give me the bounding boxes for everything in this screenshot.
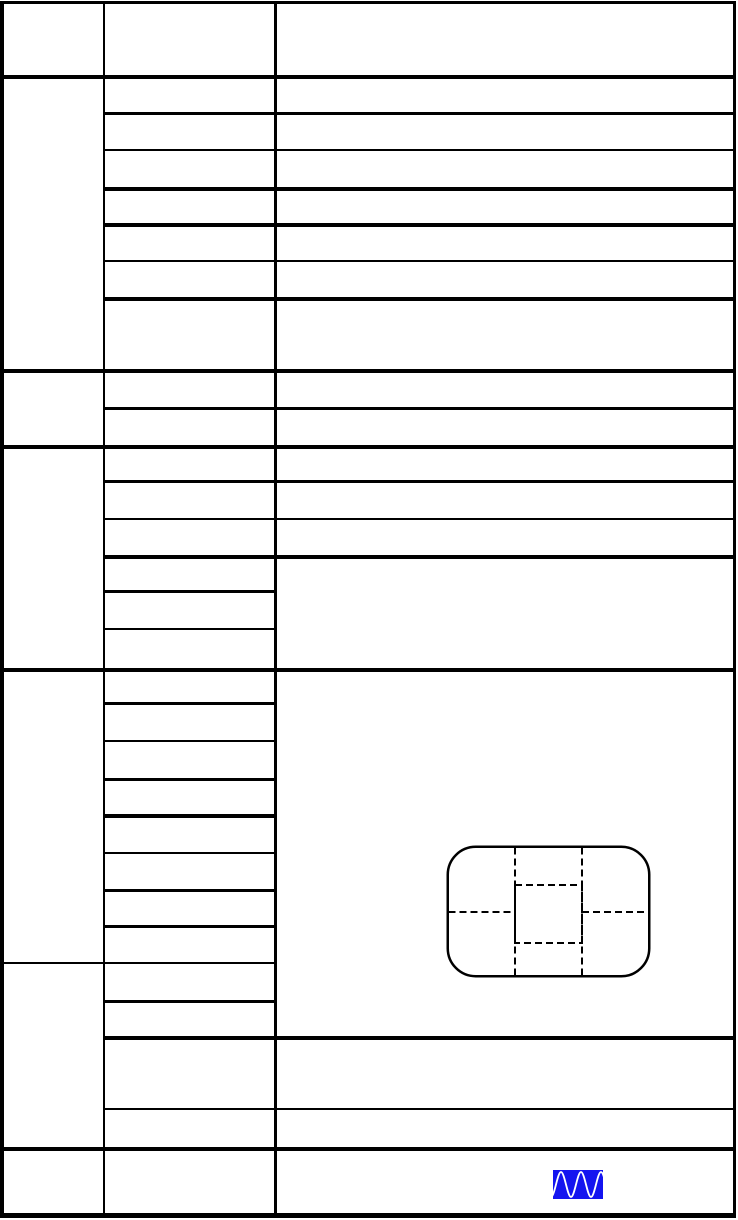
document-page <box>0 0 738 1220</box>
table-h-line <box>0 962 277 964</box>
table-h-line <box>0 1147 736 1151</box>
table-h-line <box>103 149 736 151</box>
table-h-line <box>103 740 277 742</box>
table-h-line <box>103 187 736 191</box>
table-h-line <box>103 112 736 115</box>
table-h-line <box>103 814 277 818</box>
table-h-line <box>103 590 277 593</box>
table-h-line <box>103 297 736 301</box>
table-v-line <box>0 1 4 1218</box>
table-h-line <box>0 1213 736 1218</box>
center-metering-box <box>515 885 582 943</box>
table-h-line <box>103 480 736 483</box>
sine-wave-icon <box>553 1170 603 1199</box>
table-h-line <box>0 75 736 79</box>
table-h-line <box>103 1000 277 1003</box>
table-h-line <box>0 1 736 4</box>
table-h-line <box>0 668 736 672</box>
table-h-line <box>103 628 277 630</box>
table-h-line <box>103 702 277 705</box>
table-h-line <box>103 1036 736 1040</box>
table-v-line <box>274 1 277 1218</box>
metering-area-diagram <box>446 845 651 978</box>
table-h-line <box>103 223 736 227</box>
table-h-line <box>103 555 736 559</box>
table-h-line <box>0 369 736 373</box>
table-h-line <box>103 518 736 520</box>
table-h-line <box>103 1108 736 1110</box>
table-h-line <box>103 778 277 781</box>
table-h-line <box>103 407 736 410</box>
table-h-line <box>103 260 736 262</box>
table-h-line <box>103 852 277 854</box>
table-v-line <box>103 1 105 1218</box>
table-v-line <box>733 1 736 1218</box>
table-h-line <box>103 925 277 928</box>
table-h-line <box>0 445 736 449</box>
table-h-line <box>103 889 277 892</box>
